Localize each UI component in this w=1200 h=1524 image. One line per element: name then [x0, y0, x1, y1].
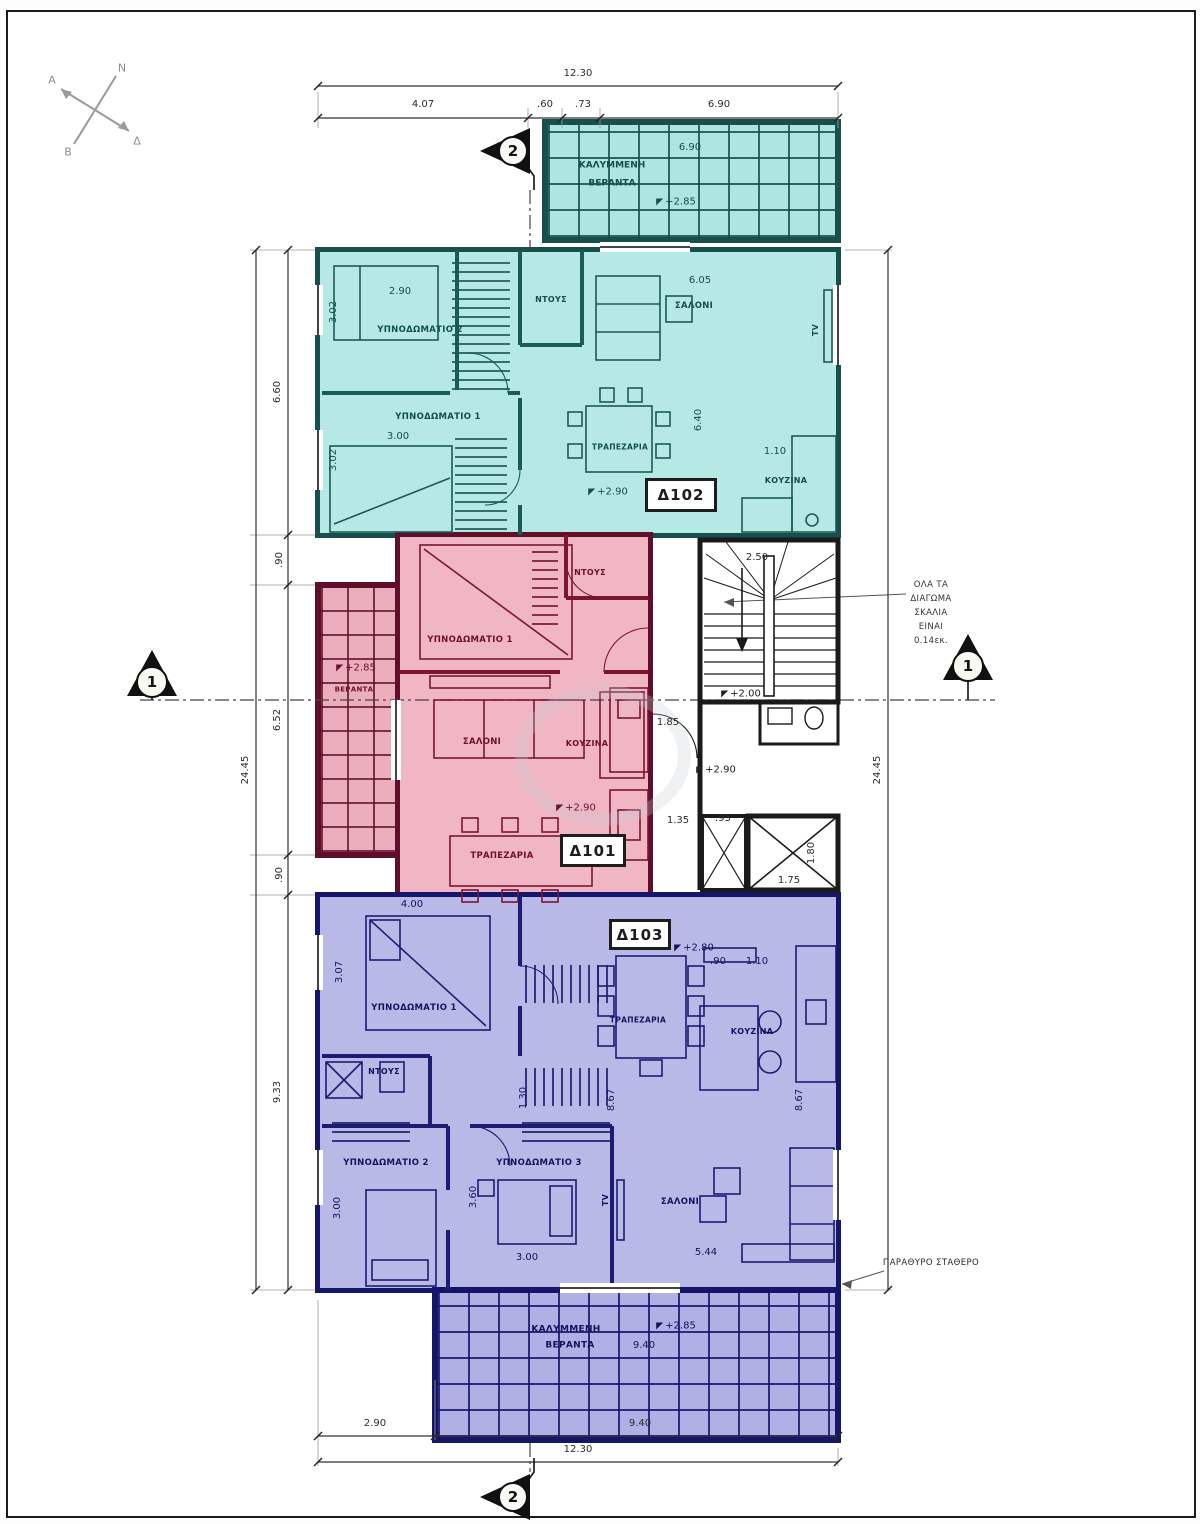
- dresser-d103-a: [332, 1118, 410, 1142]
- level-icon: [336, 665, 343, 672]
- apartment-id-d103: Δ103: [609, 919, 671, 950]
- level-d103: +2.80: [674, 943, 714, 954]
- balcony-d102-level: +2.85: [656, 197, 696, 208]
- stair-note-line: ΣΚΑΛΙΑ: [900, 606, 962, 620]
- dim-d102-bedroom2-w: 2.90: [389, 287, 411, 297]
- stair-note-line: ΕΙΝΑΙ: [900, 620, 962, 634]
- dim-bottom-b: 9.40: [629, 1419, 651, 1429]
- balcony-d103-level: +2.85: [656, 1321, 696, 1332]
- section-1-right-number: 1: [963, 657, 973, 675]
- level-icon: [556, 805, 563, 812]
- wardrobe-d101: [532, 545, 558, 625]
- door-d102-balcony: [600, 242, 690, 252]
- room-d102-shower: ΝΤΟΥΣ: [535, 296, 567, 304]
- dim-d103-bedroom1-d: 3.07: [335, 961, 345, 983]
- room-d103-tv: TV: [602, 1194, 610, 1206]
- room-d101-bedroom1: ΥΠΝΟΔΩΜΑΤΙΟ 1: [427, 636, 512, 645]
- room-d103-bedroom3: ΥΠΝΟΔΩΜΑΤΙΟ 3: [496, 1159, 581, 1168]
- level-icon: [656, 199, 663, 206]
- room-d101-dining: ΤΡΑΠΕΖΑΡΙΑ: [470, 852, 533, 861]
- dim-top-d: 6.90: [708, 100, 730, 110]
- dim-hall-c: .95: [715, 814, 731, 824]
- dim-left-c: 6.52: [273, 709, 283, 731]
- room-d103-kitchen: ΚΟΥΖΙΝΑ: [731, 1028, 774, 1036]
- window-d102-right: [833, 285, 843, 365]
- room-d102-tv: TV: [812, 324, 820, 336]
- balcony-d103-label-1: ΚΑΛΥΜΜΕΝΗ: [531, 1326, 600, 1335]
- dim-bottom-total: 12.30: [564, 1445, 593, 1455]
- section-1-left-number: 1: [147, 673, 157, 691]
- room-d102-bedroom1: ΥΠΝΟΔΩΜΑΤΙΟ 1: [395, 413, 480, 422]
- dim-d103-depth-left: 8.67: [607, 1089, 617, 1111]
- dim-d102-bedroom1-w: 3.00: [387, 432, 409, 442]
- room-d101-kitchen: ΚΟΥΖΙΝΑ: [566, 740, 609, 748]
- apartment-id-d101: Δ101: [560, 834, 626, 867]
- dim-d103-bedroom2-d: 3.00: [333, 1197, 343, 1219]
- closet-d103-a: [525, 965, 613, 1003]
- dim-top-b: .60: [537, 100, 553, 110]
- balcony-d102-width: 6.90: [679, 143, 701, 153]
- dim-lift-w: 1.75: [778, 876, 800, 886]
- stair-note-line: ΟΛΑ ΤΑ: [900, 578, 962, 592]
- dim-top-total: 12.30: [564, 69, 593, 79]
- window-d103-left-b: [313, 1150, 323, 1205]
- compass-north-label: Ν: [118, 62, 126, 75]
- dim-left-total: 24.45: [241, 756, 251, 785]
- balcony-d103-width: 9.40: [633, 1341, 655, 1351]
- window-d102-left-a: [313, 285, 323, 335]
- watermark: [515, 685, 691, 826]
- door-d101-balcony: [391, 700, 401, 780]
- level-d102: +2.90: [588, 487, 628, 498]
- room-d103-dining: ΤΡΑΠΕΖΑΡΙΑ: [610, 1016, 666, 1024]
- dim-left-d: .90: [275, 867, 285, 883]
- window-d103-right: [833, 1150, 843, 1220]
- dim-hall-a: 1.85: [657, 718, 679, 728]
- section-2-bottom-number: 2: [508, 1488, 518, 1506]
- dim-left-b: .90: [275, 552, 285, 568]
- dim-left-e: 9.33: [273, 1081, 283, 1103]
- room-d101-shower: ΝΤΟΥΣ: [574, 569, 606, 577]
- dim-d103-kitchen-b: 1.10: [746, 957, 768, 967]
- section-2-top-number: 2: [508, 142, 518, 160]
- dim-lift-d: 1.80: [807, 842, 817, 864]
- balcony-d101-level: +2.85: [336, 663, 376, 674]
- dim-d103-bedroom3-w: 3.00: [516, 1253, 538, 1263]
- floor-plan-canvas: Ν Δ Β Α 2 2 1 1 12.30 4.07 .60 .73 6.90 …: [0, 0, 1200, 1524]
- balcony-d102-label-1: ΚΑΛΥΜΜΕΝΗ: [579, 162, 646, 171]
- dim-d103-bedroom1-w: 4.00: [401, 900, 423, 910]
- stair-note: ΟΛΑ ΤΑ ΔΙΑΓΩΜΑ ΣΚΑΛΙΑ ΕΙΝΑΙ 0.14εκ.: [900, 578, 962, 648]
- dim-hall-b: 1.35: [667, 816, 689, 826]
- stair-note-line: ΔΙΑΓΩΜΑ: [900, 592, 962, 606]
- wardrobe-d102-b: [455, 438, 507, 530]
- room-d102-dining: ΤΡΑΠΕΖΑΡΙΑ: [592, 443, 648, 451]
- level-icon: [656, 1323, 663, 1330]
- dresser-d103-b: [522, 1118, 610, 1142]
- dim-d103-depth-right: 8.67: [795, 1089, 805, 1111]
- dim-d103-hall-d: 1.30: [519, 1087, 529, 1109]
- level-landing: +2.90: [696, 765, 736, 776]
- room-d102-bedroom2: ΥΠΝΟΔΩΜΑΤΙΟ 2: [377, 326, 462, 335]
- dim-d103-living-w: 5.44: [695, 1248, 717, 1258]
- dim-d102-kitchen-w: 1.10: [764, 447, 786, 457]
- dim-right-total: 24.45: [873, 756, 883, 785]
- room-d103-living: ΣΑΛΟΝΙ: [661, 1198, 699, 1207]
- balcony-d101: [315, 582, 401, 858]
- dim-top-c: .73: [575, 100, 591, 110]
- compass-west-label: Α: [48, 74, 56, 87]
- compass-south-label: Β: [64, 146, 72, 159]
- level-icon: [674, 945, 681, 952]
- dim-top-a: 4.07: [412, 100, 434, 110]
- room-d103-shower: ΝΤΟΥΣ: [368, 1068, 400, 1076]
- dim-left-a: 6.60: [273, 381, 283, 403]
- balcony-d102: [542, 119, 841, 243]
- balcony-d103-label-2: ΒΕΡΑΝΤΑ: [545, 1342, 594, 1351]
- dim-d102-living-d: 6.40: [694, 409, 704, 431]
- compass-east-label: Δ: [133, 135, 141, 148]
- room-d102-living: ΣΑΛΟΝΙ: [675, 302, 713, 311]
- closet-d103-b: [525, 1068, 613, 1106]
- dim-d102-living-w: 6.05: [689, 276, 711, 286]
- apartment-id-d102: Δ102: [645, 478, 717, 512]
- balcony-d102-label-2: ΒΕΡΑΝΤΑ: [588, 180, 635, 189]
- dim-d103-kitchen-a: .90: [710, 957, 726, 967]
- level-icon: [588, 489, 595, 496]
- dim-bottom-a: 2.90: [364, 1419, 386, 1429]
- level-half-landing: +2.00: [721, 689, 761, 700]
- dim-d103-bedroom3-d: 3.60: [469, 1186, 479, 1208]
- dim-d102-bedroom2-d: 3.02: [329, 301, 339, 323]
- room-d102-kitchen: ΚΟΥΖΙΝΑ: [765, 477, 808, 485]
- dim-stair-width: 2.50: [746, 553, 768, 563]
- dim-d102-bedroom1-d: 3.02: [329, 449, 339, 471]
- window-d103-left-a: [313, 935, 323, 990]
- room-d103-bedroom2: ΥΠΝΟΔΩΜΑΤΙΟ 2: [343, 1159, 428, 1168]
- window-d102-left-b: [313, 430, 323, 490]
- level-icon: [721, 691, 728, 698]
- level-d101: +2.90: [556, 803, 596, 814]
- stair-note-line: 0.14εκ.: [900, 634, 962, 648]
- balcony-d101-label: ΒΕΡΑΝΤΑ: [335, 687, 374, 694]
- room-d101-living: ΣΑΛΟΝΙ: [463, 738, 501, 747]
- fixed-window-note: ΠΑΡΑΘΥΡΟ ΣΤΑΘΕΡΟ: [883, 1259, 979, 1268]
- door-d103-balcony: [560, 1283, 680, 1293]
- level-icon: [696, 767, 703, 774]
- room-d103-bedroom1: ΥΠΝΟΔΩΜΑΤΙΟ 1: [371, 1004, 456, 1013]
